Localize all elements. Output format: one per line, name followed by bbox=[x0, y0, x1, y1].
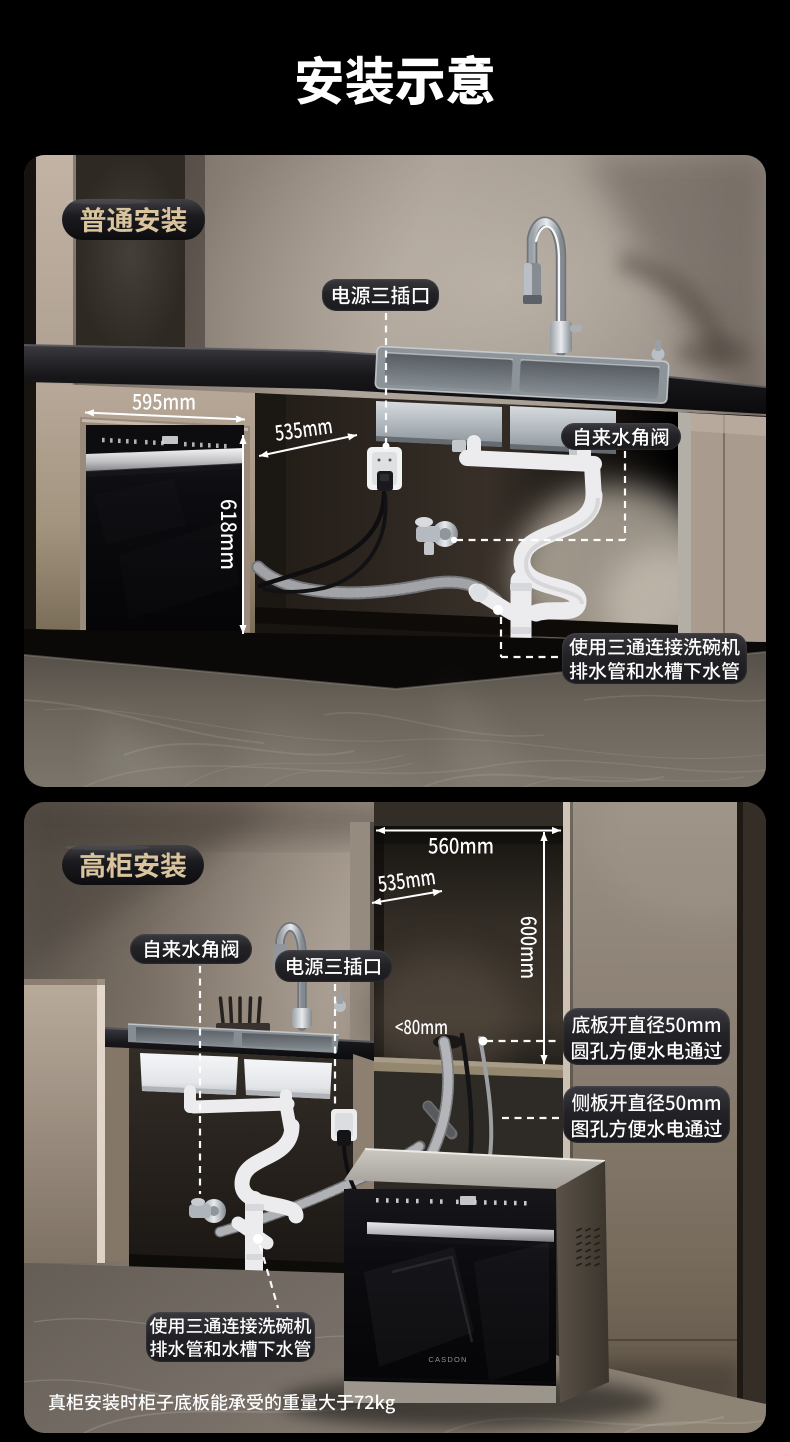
svg-text:CASDON: CASDON bbox=[428, 1355, 467, 1364]
